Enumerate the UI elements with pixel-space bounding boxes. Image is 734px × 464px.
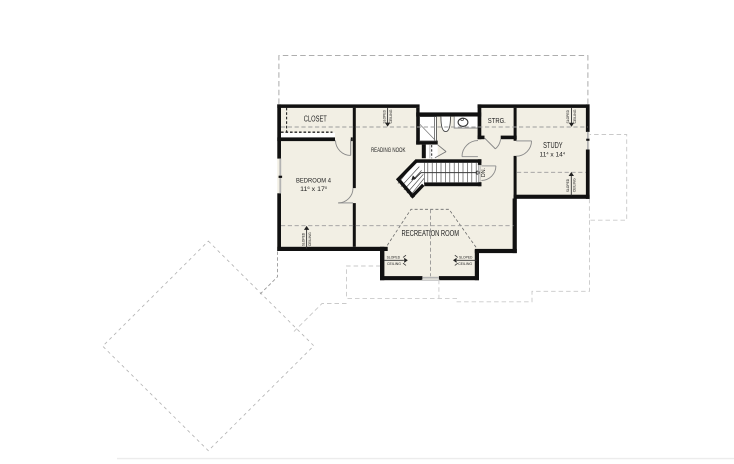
svg-text:CEILING: CEILING [458, 261, 472, 266]
svg-text:CEILING: CEILING [387, 261, 401, 266]
svg-text:SLOPED: SLOPED [565, 110, 570, 124]
svg-text:SLOPED: SLOPED [381, 110, 386, 124]
svg-text:RECREATION ROOM: RECREATION ROOM [402, 229, 460, 238]
svg-text:CEILING: CEILING [307, 232, 312, 246]
svg-text:STUDY: STUDY [543, 141, 563, 150]
svg-text:BEDROOM 4: BEDROOM 4 [296, 179, 332, 185]
svg-text:SLOPED: SLOPED [300, 233, 305, 247]
svg-text:CLOSET: CLOSET [304, 115, 327, 124]
svg-text:114 x 144: 114 x 144 [540, 152, 566, 159]
svg-text:READING NOOK: READING NOOK [371, 148, 406, 154]
svg-text:STRG.: STRG. [488, 116, 506, 125]
svg-text:CEILING: CEILING [572, 178, 577, 192]
svg-text:SLOPED: SLOPED [387, 254, 401, 259]
svg-text:CEILING: CEILING [388, 110, 393, 124]
svg-text:SLOPED: SLOPED [459, 254, 473, 259]
svg-text:CEILING: CEILING [572, 110, 577, 124]
svg-text:116 x 170: 116 x 170 [300, 186, 327, 193]
svg-text:DN.: DN. [481, 167, 487, 177]
svg-text:SLOPED: SLOPED [565, 179, 570, 193]
